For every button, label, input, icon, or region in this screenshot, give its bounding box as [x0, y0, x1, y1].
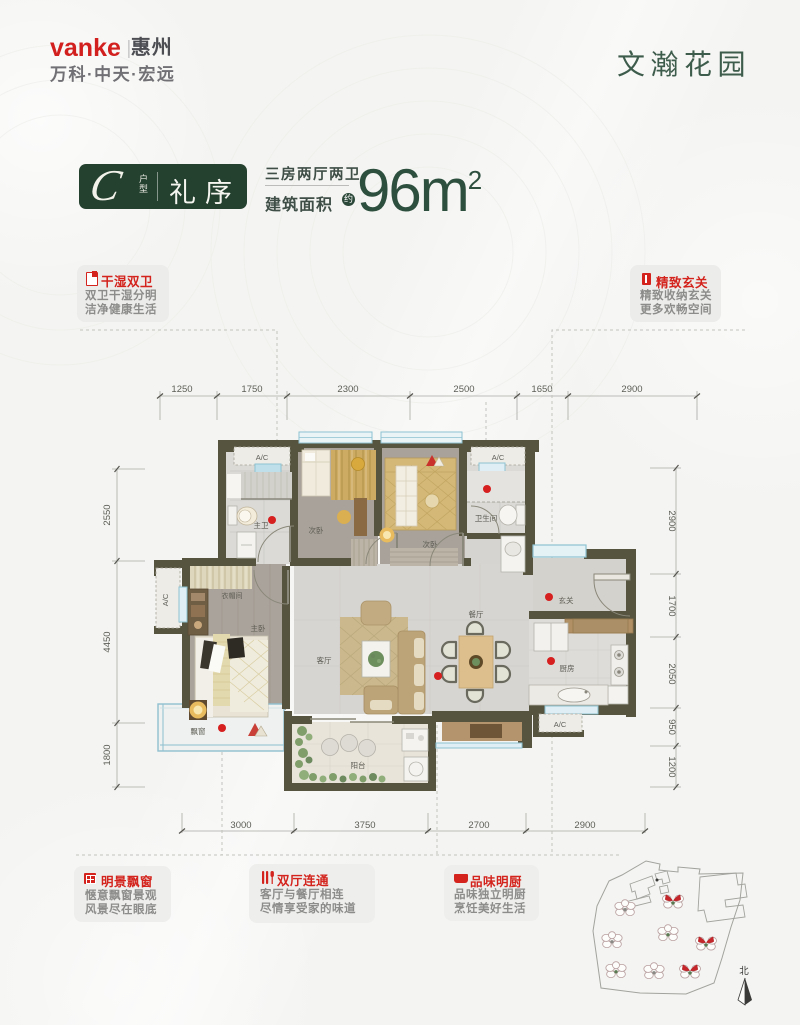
svg-text:2900: 2900	[621, 384, 642, 395]
svg-text:餐厅: 餐厅	[469, 610, 484, 619]
svg-text:2900: 2900	[574, 820, 595, 831]
svg-text:2700: 2700	[468, 820, 489, 831]
svg-text:主卫: 主卫	[254, 520, 269, 530]
svg-text:主卧: 主卧	[251, 623, 266, 633]
svg-text:飘窗: 飘窗	[191, 726, 206, 736]
svg-text:1700: 1700	[666, 595, 677, 616]
svg-text:1250: 1250	[171, 384, 192, 395]
svg-text:A/C: A/C	[256, 453, 269, 462]
svg-text:1750: 1750	[241, 384, 262, 395]
svg-text:客厅: 客厅	[317, 655, 332, 665]
svg-text:2550: 2550	[102, 504, 113, 525]
svg-text:2050: 2050	[666, 663, 677, 684]
svg-text:1650: 1650	[531, 384, 552, 395]
svg-text:2900: 2900	[666, 510, 677, 531]
svg-text:3000: 3000	[230, 820, 251, 831]
svg-text:3750: 3750	[354, 820, 375, 831]
svg-text:1200: 1200	[666, 756, 677, 777]
svg-text:A/C: A/C	[554, 720, 567, 729]
svg-text:950: 950	[666, 719, 677, 735]
svg-text:衣帽间: 衣帽间	[222, 591, 243, 600]
svg-text:厨房: 厨房	[560, 663, 575, 673]
svg-text:4450: 4450	[102, 631, 113, 652]
svg-text:2500: 2500	[453, 384, 474, 395]
svg-text:2300: 2300	[337, 384, 358, 395]
svg-text:北: 北	[739, 966, 749, 977]
svg-text:次卧: 次卧	[309, 525, 324, 535]
svg-text:1800: 1800	[102, 744, 113, 765]
svg-text:阳台: 阳台	[351, 760, 366, 770]
svg-text:A/C: A/C	[492, 453, 505, 462]
svg-text:A/C: A/C	[161, 593, 170, 606]
svg-text:玄关: 玄关	[559, 595, 574, 605]
